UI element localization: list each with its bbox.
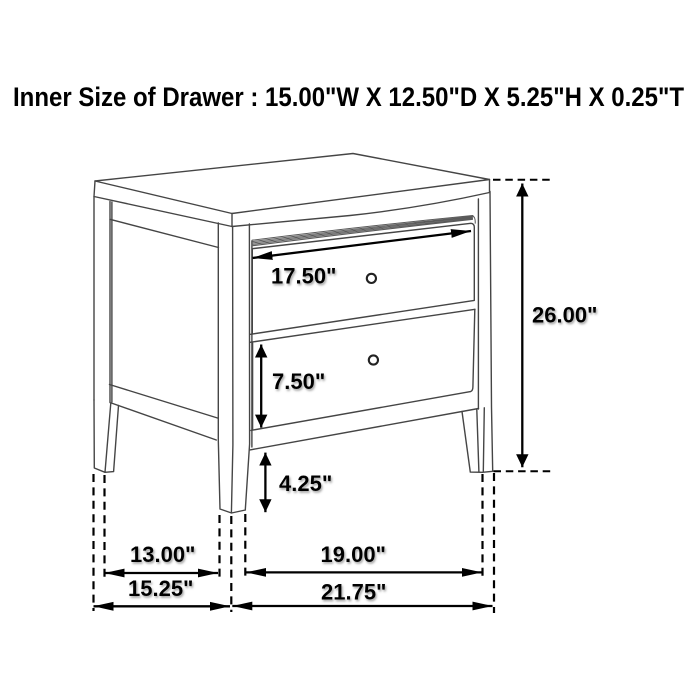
- svg-text:13.00": 13.00": [130, 542, 195, 567]
- svg-text:Inner Size of Drawer : 15.00"W: Inner Size of Drawer : 15.00"W X 12.50"D…: [13, 82, 684, 112]
- svg-text:7.50": 7.50": [272, 369, 325, 394]
- svg-text:21.75": 21.75": [321, 580, 386, 605]
- svg-text:26.00": 26.00": [532, 303, 597, 328]
- svg-text:4.25": 4.25": [279, 471, 332, 496]
- svg-text:15.25": 15.25": [128, 576, 193, 601]
- svg-text:19.00": 19.00": [321, 542, 386, 567]
- svg-text:17.50": 17.50": [271, 264, 336, 289]
